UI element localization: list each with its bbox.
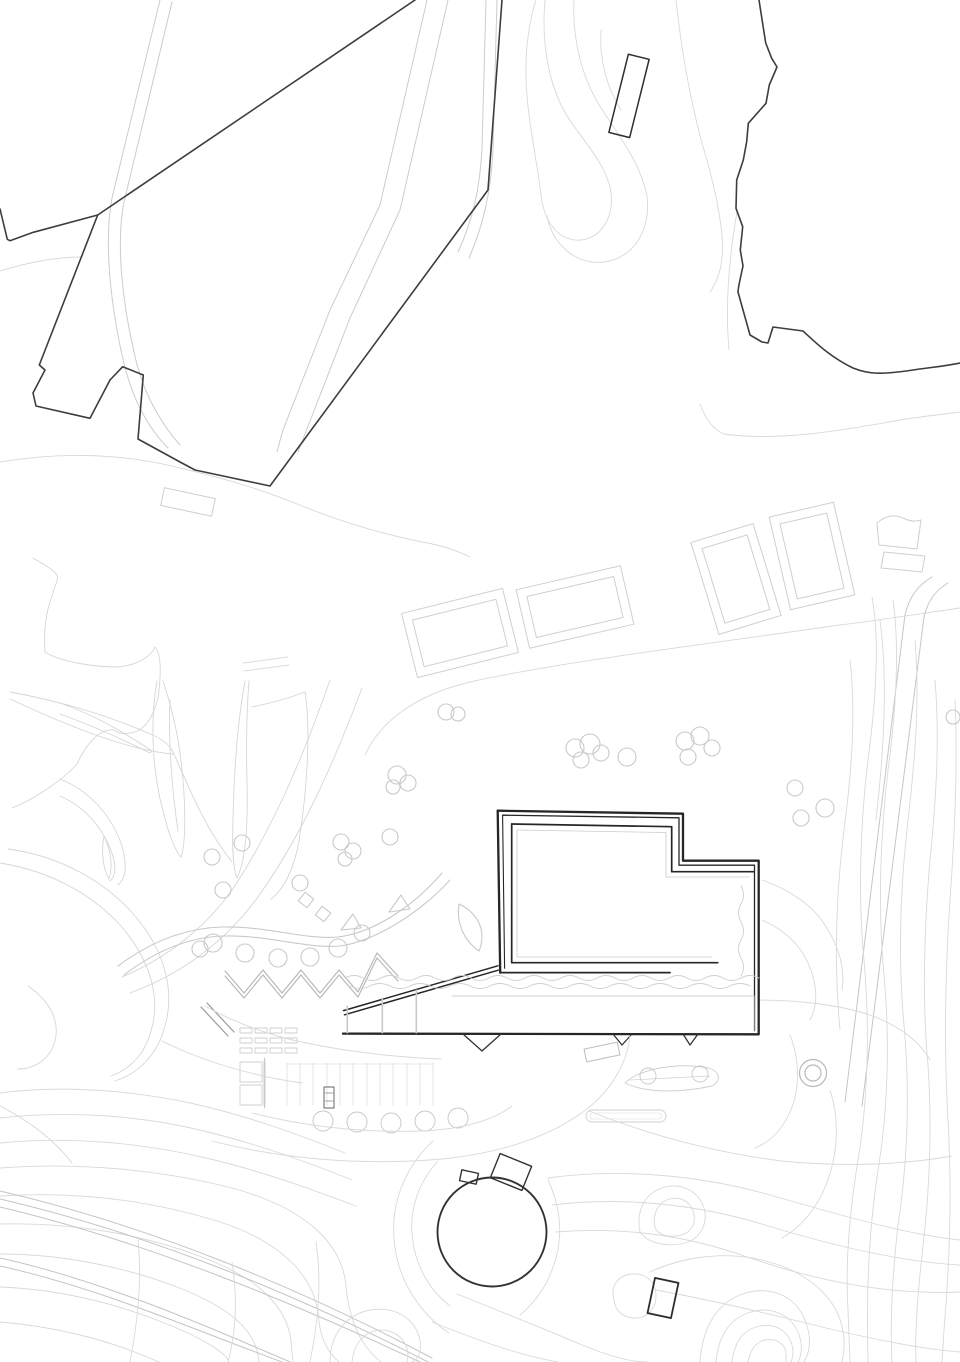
site-lower-shape bbox=[240, 1028, 252, 1033]
trees-shape bbox=[338, 852, 352, 866]
building-inner-left bbox=[503, 815, 505, 968]
ramp-hatch-1 bbox=[347, 1006, 348, 1033]
trees-shape bbox=[382, 829, 398, 845]
trees-shape bbox=[787, 780, 803, 796]
tank-shed-large bbox=[490, 1154, 531, 1191]
promenade-shape bbox=[298, 892, 313, 907]
pier-outline bbox=[0, 0, 502, 486]
trees-shape bbox=[680, 749, 696, 765]
ring-structure bbox=[800, 1060, 827, 1087]
building-inner-offset bbox=[503, 815, 755, 1030]
shorelines bbox=[0, 455, 960, 755]
organic-left-shape bbox=[252, 692, 305, 707]
tank-shed-small bbox=[460, 1170, 479, 1184]
ramp-hatch-3 bbox=[416, 990, 417, 1033]
hall-c-inner bbox=[702, 535, 770, 623]
trees-shape bbox=[236, 944, 254, 962]
contours-bottom-shape bbox=[432, 1322, 558, 1362]
contours-top-shape bbox=[676, 0, 723, 292]
trees-shape bbox=[204, 849, 220, 865]
contours-right-shape bbox=[942, 700, 956, 1362]
water-wave-2 bbox=[350, 984, 750, 989]
organic-left-shape bbox=[174, 754, 232, 862]
site-lower-shape bbox=[313, 1111, 333, 1131]
trees-shape bbox=[292, 875, 308, 891]
trees-shape bbox=[215, 882, 231, 898]
contours-right-shape bbox=[916, 680, 938, 1362]
hall-d-inner bbox=[780, 513, 844, 599]
site-lower-shape bbox=[270, 1048, 282, 1053]
hall-c-outer bbox=[691, 524, 781, 635]
contours-bottom-shape bbox=[716, 1310, 801, 1362]
contours-bottom-shape bbox=[412, 1161, 450, 1306]
contours-bottom-shape bbox=[520, 1180, 560, 1315]
pier-roads-shape bbox=[277, 0, 427, 452]
gray-buildings bbox=[161, 488, 925, 678]
trees-shape bbox=[329, 939, 347, 957]
organic-left-shape bbox=[153, 681, 185, 857]
contours-bottom-shape bbox=[748, 1340, 786, 1362]
dock-rect bbox=[161, 488, 216, 516]
trees-shape bbox=[234, 835, 250, 851]
shorelines-shape bbox=[243, 657, 288, 663]
site-lower-shape bbox=[692, 1066, 708, 1082]
contours-bottom-shape bbox=[0, 1254, 259, 1362]
organic-left-shape bbox=[60, 714, 152, 753]
site-plan-canvas bbox=[0, 0, 960, 1362]
trees-shape bbox=[618, 748, 636, 766]
building-north bbox=[609, 54, 649, 137]
organic-left-shape bbox=[271, 692, 308, 899]
site-lower-shape bbox=[448, 1108, 468, 1128]
stair-arrow-1 bbox=[463, 1034, 501, 1051]
pier-roads bbox=[108, 0, 497, 452]
site-lower-shape bbox=[270, 1028, 282, 1033]
contours-bottom-shape bbox=[162, 1041, 302, 1083]
organic-left-shape bbox=[60, 796, 115, 881]
building-outer-boundary bbox=[343, 811, 759, 1035]
contours-bottom-shape bbox=[613, 1274, 656, 1318]
site-lower-shape bbox=[415, 1111, 435, 1131]
organic-left-shape bbox=[10, 692, 174, 754]
site-lower-shape bbox=[630, 1076, 710, 1080]
trees-shape bbox=[816, 799, 834, 817]
plaza-square-2 bbox=[240, 1085, 262, 1105]
promenade bbox=[118, 873, 482, 975]
hall-b-outer bbox=[516, 566, 634, 649]
promenade-shape bbox=[118, 873, 442, 966]
contours-bottom-shape bbox=[0, 1287, 229, 1362]
contours-bottom-shape bbox=[457, 1294, 647, 1362]
hall-d-outer bbox=[769, 502, 855, 609]
site-lower-shape bbox=[255, 1038, 267, 1043]
planter-pill bbox=[586, 1110, 666, 1122]
green-wall-wave bbox=[739, 886, 744, 976]
contours-bottom-shape bbox=[0, 1089, 345, 1153]
vehicle-rect bbox=[324, 1087, 334, 1108]
shorelines-shape bbox=[244, 665, 289, 671]
water-wave-1 bbox=[345, 976, 759, 981]
contours-right-shape bbox=[847, 597, 876, 1362]
contours-bottom-shape bbox=[656, 1290, 960, 1352]
site-lower-shape bbox=[270, 1038, 282, 1043]
contours-bottom-shape bbox=[228, 1262, 235, 1362]
contours-top-shape bbox=[727, 212, 737, 350]
south-building-rect bbox=[648, 1278, 679, 1318]
contours-right-shape bbox=[867, 600, 896, 1362]
pier-roads-shape bbox=[120, 2, 180, 445]
trees-shape bbox=[386, 780, 400, 794]
contours-right bbox=[755, 597, 956, 1362]
tank-circle bbox=[438, 1178, 547, 1287]
lower-structure bbox=[264, 1058, 265, 1108]
site-lower-shape bbox=[240, 1038, 252, 1043]
organic-left bbox=[0, 558, 362, 1163]
organic-left-shape bbox=[60, 779, 125, 885]
contours-bottom-shape bbox=[556, 1230, 960, 1292]
pier-roads-shape bbox=[458, 0, 486, 252]
trees-shape bbox=[345, 843, 361, 859]
trees-shape bbox=[269, 949, 287, 967]
site-lower-shape bbox=[285, 1028, 297, 1033]
site-lower-shape bbox=[285, 1048, 297, 1053]
contours-bottom-shape bbox=[552, 1202, 960, 1265]
contours-bottom-shape bbox=[0, 1140, 356, 1206]
stair-arrow-3 bbox=[683, 1034, 698, 1045]
plaza-square-1 bbox=[240, 1062, 262, 1082]
main-building bbox=[201, 811, 759, 1051]
pier-roads-shape bbox=[108, 0, 168, 448]
contours-bottom-shape bbox=[732, 1325, 793, 1362]
site-lower-shape bbox=[381, 1113, 401, 1133]
contours-top-shape bbox=[700, 404, 960, 437]
pier-top-edge bbox=[0, 0, 415, 241]
organic-left-shape bbox=[12, 558, 160, 808]
promenade-shape bbox=[341, 914, 361, 930]
pier-roads-shape bbox=[298, 0, 448, 452]
trees-shape bbox=[451, 707, 465, 721]
trees-shape bbox=[400, 775, 416, 791]
organic-left-shape bbox=[18, 986, 56, 1069]
bench-island bbox=[625, 1066, 718, 1091]
contours-right-shape bbox=[762, 880, 843, 990]
contours-bottom-shape bbox=[0, 1207, 420, 1362]
hall-b-inner bbox=[527, 577, 623, 638]
site-lower-shape bbox=[255, 1048, 267, 1053]
tank bbox=[438, 1154, 547, 1287]
trees-shape bbox=[946, 710, 960, 724]
shorelines-shape bbox=[365, 608, 960, 755]
contours-right-shape bbox=[837, 660, 853, 1030]
contours-bottom-shape bbox=[0, 1166, 381, 1362]
organic-left-shape bbox=[8, 849, 169, 1081]
south-building bbox=[648, 1278, 679, 1318]
contours-right-shape bbox=[891, 640, 917, 1362]
building-north-shape bbox=[622, 96, 634, 98]
site-plan-page bbox=[0, 0, 960, 1362]
trees-shape bbox=[301, 948, 319, 966]
promenade-shape bbox=[389, 895, 410, 912]
contours-bottom-shape bbox=[212, 1036, 630, 1162]
contours-bottom-shape bbox=[548, 1173, 960, 1240]
contours-bottom-shape bbox=[0, 1224, 293, 1362]
trees-shape bbox=[333, 834, 349, 850]
site-lower-shape bbox=[240, 1048, 252, 1053]
leaf-lens bbox=[458, 904, 482, 951]
trees-shape bbox=[704, 740, 720, 756]
hall-a-inner bbox=[412, 599, 507, 666]
hall-wall-left bbox=[512, 824, 718, 963]
organic-left-shape bbox=[103, 836, 111, 879]
main-building-shape bbox=[517, 830, 749, 877]
contours-top-shape bbox=[526, 0, 612, 240]
hall-wall-top bbox=[512, 824, 754, 872]
coastline bbox=[736, 0, 960, 373]
coast-path bbox=[736, 0, 960, 373]
contours-bottom-shape bbox=[130, 1240, 140, 1362]
promenade-shape bbox=[315, 906, 330, 921]
contours-top-shape bbox=[547, 0, 648, 262]
contours-top-shape bbox=[0, 257, 82, 271]
contours-bottom-shape bbox=[0, 1114, 352, 1180]
shorelines-shape bbox=[0, 455, 470, 557]
organic-left-shape bbox=[233, 681, 249, 878]
kiosk-rect bbox=[584, 1042, 620, 1062]
ring-structure-shape bbox=[805, 1065, 821, 1081]
shed-e bbox=[877, 516, 921, 549]
contours-right-shape bbox=[762, 920, 816, 1020]
trees-shape bbox=[793, 810, 809, 826]
ring-structure-shape bbox=[800, 1060, 827, 1087]
contours-bottom-shape bbox=[394, 1141, 449, 1333]
hall-a-outer bbox=[402, 588, 519, 677]
contours-right-shape bbox=[755, 1035, 798, 1148]
shed-f bbox=[881, 552, 925, 572]
building-left-edge bbox=[498, 811, 501, 973]
trees bbox=[192, 704, 960, 967]
ramp-hatch-2 bbox=[382, 998, 383, 1033]
